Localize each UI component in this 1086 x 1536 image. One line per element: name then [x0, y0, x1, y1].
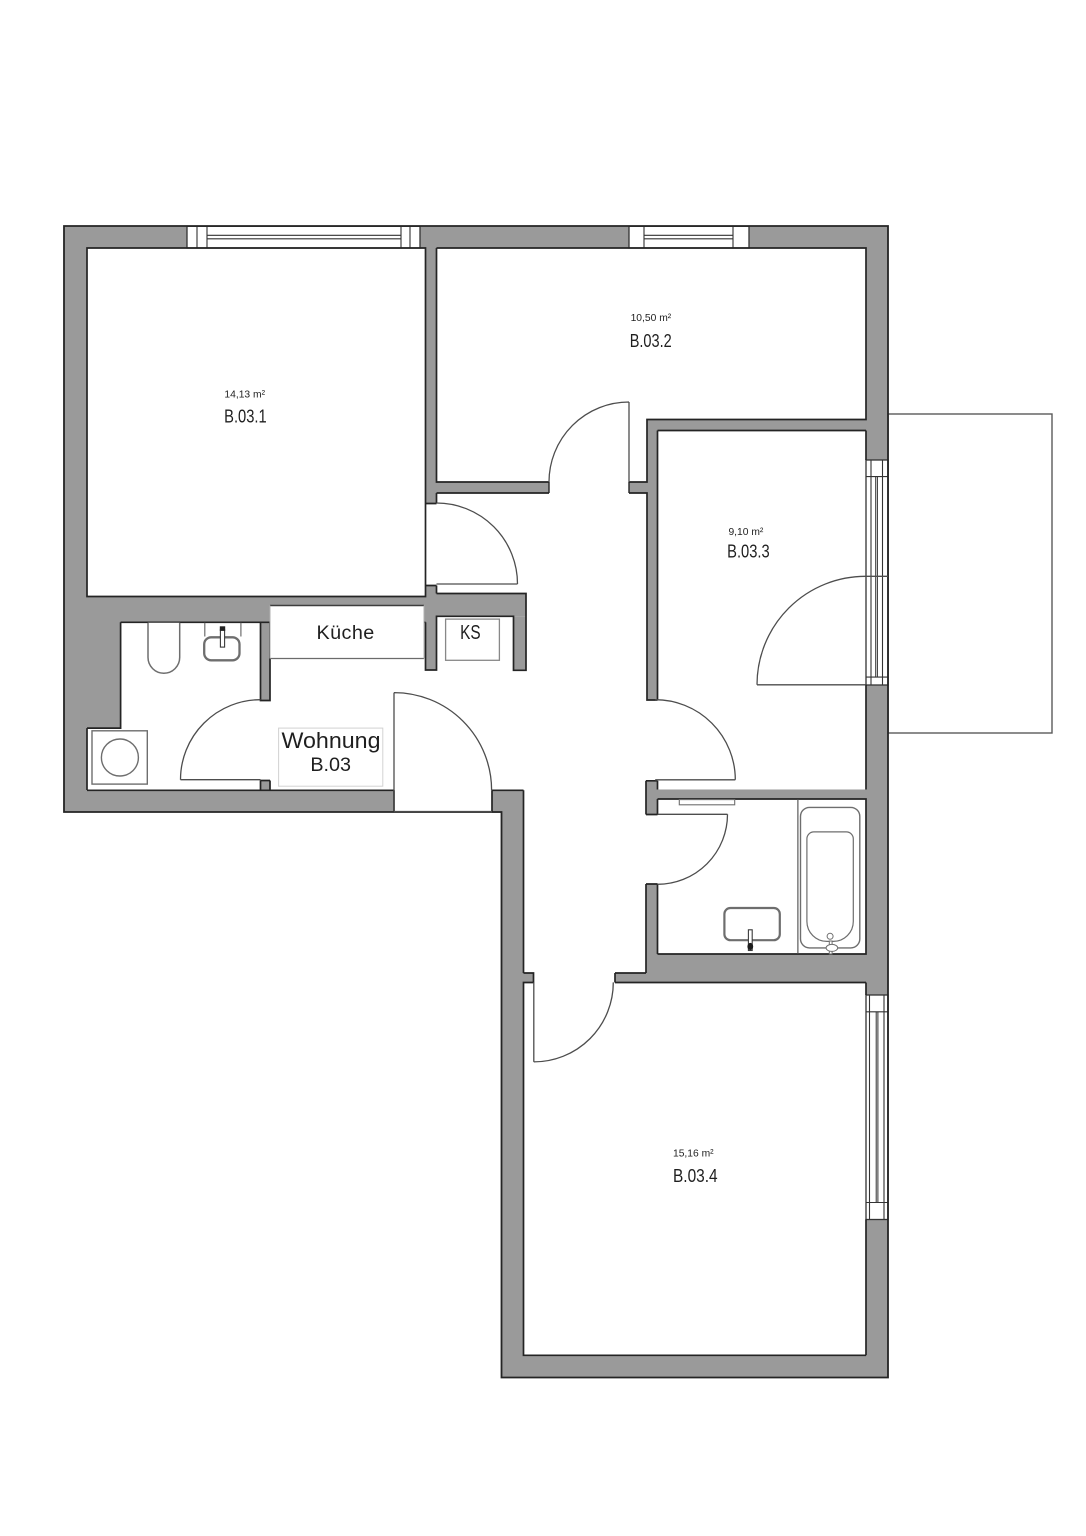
- svg-text:Wohnung: Wohnung: [282, 728, 381, 753]
- svg-text:14,13 m²: 14,13 m²: [224, 389, 265, 400]
- svg-text:10,50 m²: 10,50 m²: [631, 313, 672, 324]
- svg-text:B.03.1: B.03.1: [224, 406, 267, 426]
- svg-text:B.03: B.03: [310, 754, 351, 776]
- svg-text:9,10 m²: 9,10 m²: [728, 527, 763, 538]
- svg-text:15,16 m²: 15,16 m²: [673, 1148, 714, 1159]
- svg-text:B.03.3: B.03.3: [727, 542, 770, 562]
- svg-text:B.03.4: B.03.4: [673, 1166, 718, 1186]
- svg-text:KS: KS: [460, 622, 481, 644]
- svg-text:B.03.2: B.03.2: [630, 331, 672, 351]
- svg-text:Küche: Küche: [317, 622, 375, 644]
